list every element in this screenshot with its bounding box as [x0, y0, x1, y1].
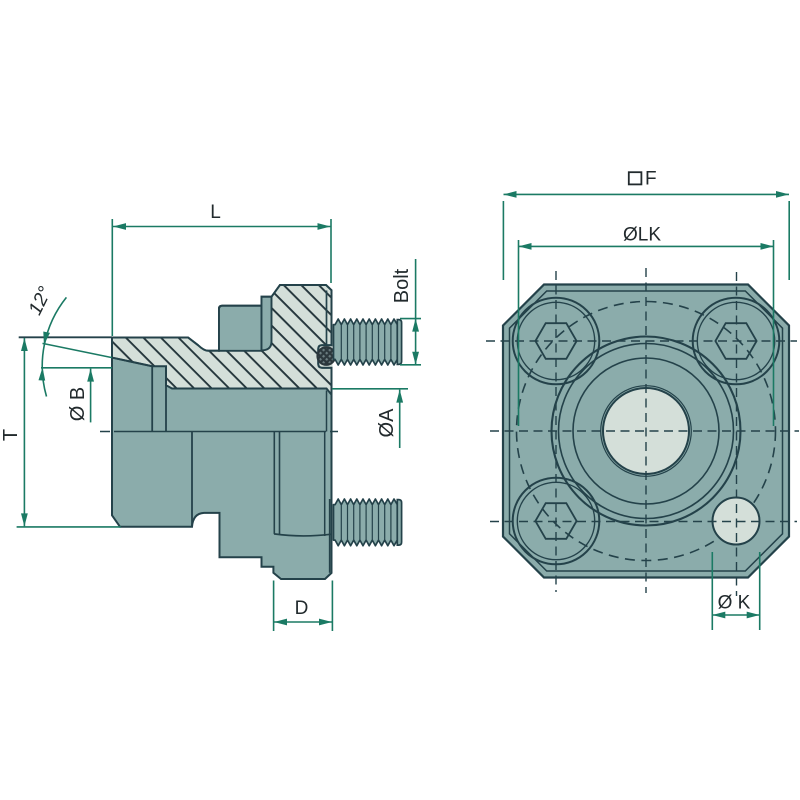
svg-text:L: L — [210, 202, 221, 223]
svg-text:Ø K: Ø K — [718, 593, 751, 614]
svg-text:ØLK: ØLK — [623, 225, 661, 246]
svg-text:T: T — [0, 429, 22, 441]
svg-text:Bolt: Bolt — [391, 268, 413, 303]
svg-text:ØA: ØA — [376, 408, 398, 438]
svg-text:D: D — [295, 598, 309, 619]
svg-text:Ø B: Ø B — [67, 387, 89, 421]
svg-text:F: F — [645, 169, 657, 190]
